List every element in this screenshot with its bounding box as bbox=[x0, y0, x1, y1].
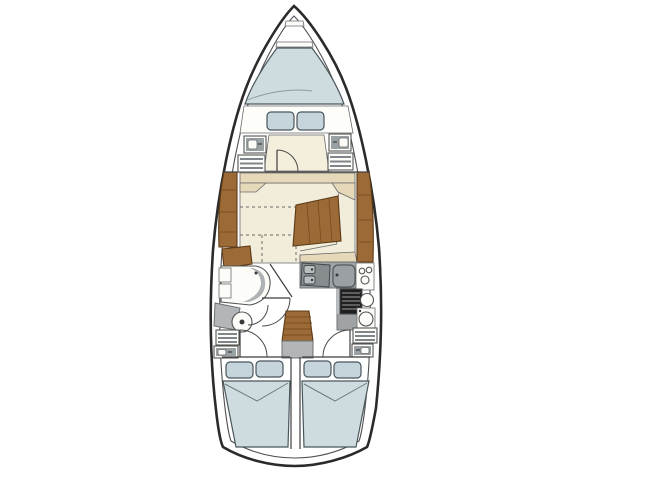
aft-port-vanity-unit bbox=[214, 346, 238, 358]
head-locker-1 bbox=[219, 268, 231, 282]
aft-stbd-vanity-unit bbox=[352, 344, 373, 357]
mini-basin bbox=[248, 140, 257, 149]
fwd-stbd-shelf-locker bbox=[328, 153, 353, 170]
shelf-stripe bbox=[240, 158, 263, 160]
toilet-drain bbox=[240, 320, 245, 325]
shelf-stripe bbox=[218, 341, 237, 343]
mini-basin bbox=[218, 350, 226, 356]
aft-stbd-shelf-locker bbox=[353, 328, 377, 343]
faucet-dot-upper bbox=[360, 291, 362, 293]
companionway-steps bbox=[282, 311, 313, 341]
boat-floorplan-svg bbox=[0, 0, 657, 493]
anchor-locker-lid-band bbox=[285, 21, 304, 26]
sink-basin-2 bbox=[304, 276, 315, 284]
shelf-stripe bbox=[218, 333, 237, 335]
head-locker-2 bbox=[219, 284, 231, 298]
boat-layout-page bbox=[0, 0, 657, 493]
shelf-stripe bbox=[355, 339, 375, 341]
basin-drain-1 bbox=[311, 268, 313, 270]
aft-stbd-pillow-1 bbox=[304, 361, 331, 377]
aft-stbd-pillow-2 bbox=[334, 362, 361, 378]
burner-knob-1 bbox=[359, 268, 365, 274]
round-sink-upper bbox=[361, 294, 374, 307]
shelf-stripe bbox=[355, 331, 375, 333]
fwd-stbd-vanity-unit bbox=[329, 134, 351, 151]
vanity-faucet-dot bbox=[255, 272, 258, 275]
icebox-dot bbox=[336, 274, 339, 277]
basin-drain-2 bbox=[311, 279, 313, 281]
shelf-stripe bbox=[218, 337, 237, 339]
shelf-stripe bbox=[355, 335, 375, 337]
forward-cabin-sole bbox=[264, 135, 329, 171]
sink-basin-1 bbox=[304, 266, 315, 274]
settee-forward-back bbox=[240, 173, 355, 183]
burner-knob-3 bbox=[361, 276, 369, 284]
shelf-stripe bbox=[330, 165, 351, 167]
aft-port-shelf-locker bbox=[216, 330, 239, 345]
shelf-stripe bbox=[330, 161, 351, 163]
faucet-dot-lower bbox=[359, 310, 361, 312]
shelf-stripe bbox=[240, 163, 263, 165]
round-sink-lower bbox=[359, 312, 373, 326]
anchor-locker-bulkhead-band bbox=[276, 42, 313, 47]
head-cabinet bbox=[222, 246, 252, 268]
side-shelf-starboard bbox=[357, 172, 373, 262]
v-berth-pillow-port bbox=[267, 112, 294, 130]
mini-basin bbox=[361, 348, 369, 354]
v-berth-pillow-starboard bbox=[297, 112, 324, 130]
aft-port-pillow-2 bbox=[256, 361, 283, 377]
burner-knob-2 bbox=[366, 267, 372, 273]
aft-port-pillow-1 bbox=[226, 362, 253, 378]
companionway-landing bbox=[282, 341, 313, 358]
mini-basin bbox=[339, 138, 348, 147]
fwd-port-shelf-locker bbox=[238, 155, 265, 172]
fwd-port-vanity-unit bbox=[244, 136, 266, 153]
shelf-stripe bbox=[240, 167, 263, 169]
shelf-stripe bbox=[330, 156, 351, 158]
